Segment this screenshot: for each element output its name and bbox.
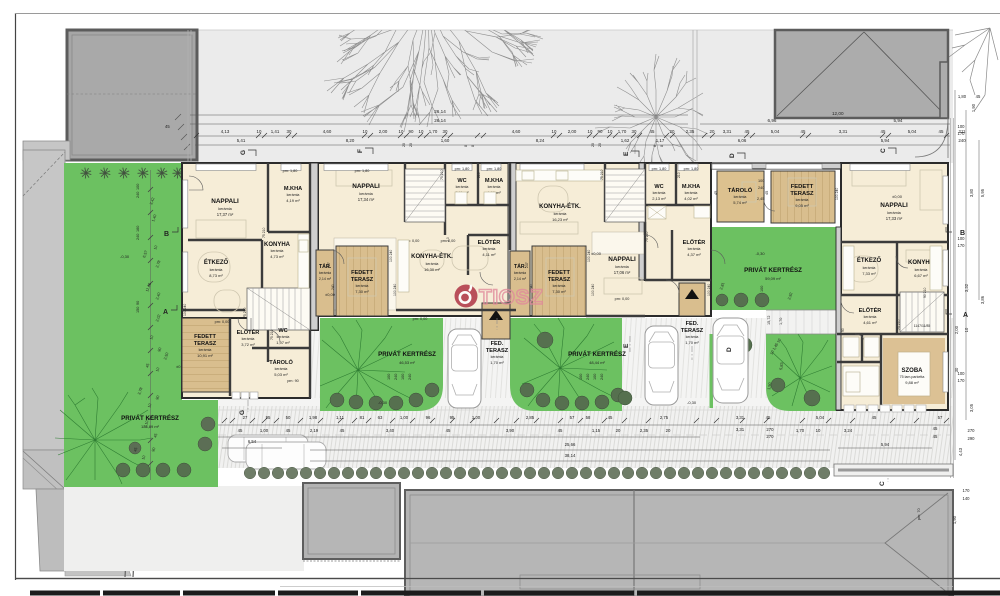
svg-text:170: 170: [958, 378, 966, 383]
svg-text:NAPPALI: NAPPALI: [211, 198, 239, 205]
svg-text:TÁROLÓ: TÁROLÓ: [269, 358, 293, 366]
svg-text:pm: 1,80: pm: 1,80: [283, 169, 298, 173]
svg-text:ÉTKEZŐ: ÉTKEZŐ: [204, 258, 229, 266]
svg-text:-0,30: -0,30: [755, 251, 765, 256]
svg-text:kerámia: kerámia: [491, 355, 504, 359]
svg-text:1,00: 1,00: [400, 415, 409, 420]
svg-text:pm: 0,00: pm: 0,00: [615, 297, 630, 301]
svg-text:NAPPALI: NAPPALI: [880, 202, 908, 209]
svg-text:kerámia: kerámia: [554, 212, 567, 216]
svg-text:45: 45: [340, 428, 345, 433]
svg-text:±0,00: ±0,00: [325, 292, 336, 297]
svg-text:1,60: 1,60: [441, 138, 450, 143]
svg-text:KONYHA-ÉTK.: KONYHA-ÉTK.: [539, 202, 581, 210]
svg-text:75 lam.parketta: 75 lam.parketta: [900, 375, 925, 379]
svg-text:kerámia: kerámia: [319, 271, 331, 275]
svg-text:3,31: 3,31: [736, 427, 745, 432]
svg-text:PRIVÁT KERTRÉSZ: PRIVÁT KERTRÉSZ: [121, 414, 179, 422]
svg-text:kerámia: kerámia: [686, 335, 699, 339]
svg-text:81: 81: [360, 415, 365, 420]
svg-text:20: 20: [598, 143, 602, 147]
svg-text:45: 45: [933, 426, 938, 431]
svg-text:TERASZ: TERASZ: [486, 348, 509, 354]
svg-text:10: 10: [552, 129, 557, 134]
svg-text:20: 20: [616, 428, 621, 433]
svg-text:1,00: 1,00: [260, 428, 269, 433]
svg-text:PRIVÁT KERTRÉSZ: PRIVÁT KERTRÉSZ: [744, 266, 802, 274]
svg-text:10: 10: [419, 129, 424, 134]
svg-text:100: 100: [760, 286, 764, 292]
svg-text:M.KHA: M.KHA: [284, 186, 302, 192]
svg-text:1,70: 1,70: [796, 428, 805, 433]
svg-text:20: 20: [402, 143, 406, 147]
svg-text:75 210: 75 210: [262, 228, 266, 238]
svg-text:M.KHA: M.KHA: [485, 178, 503, 184]
svg-text:A: A: [963, 312, 968, 319]
svg-text:4,73 m²: 4,73 m²: [270, 254, 284, 259]
svg-text:90 210: 90 210: [923, 288, 927, 298]
svg-text:TIOSZ: TIOSZ: [479, 286, 543, 309]
svg-text:kerámia: kerámia: [796, 198, 809, 202]
svg-text:63: 63: [378, 415, 383, 420]
svg-text:1,70: 1,70: [429, 129, 438, 134]
svg-text:240: 240: [331, 284, 335, 290]
svg-text:59,09 m²: 59,09 m²: [765, 276, 781, 281]
svg-text:1,70: 1,70: [618, 129, 627, 134]
svg-text:150: 150: [136, 307, 140, 313]
svg-text:8: 8: [471, 145, 475, 147]
svg-text:5,04: 5,04: [771, 129, 780, 134]
svg-text:TÁROLÓ: TÁROLÓ: [728, 186, 753, 194]
svg-text:FEDETT: FEDETT: [548, 270, 570, 276]
svg-text:kerámia: kerámia: [688, 247, 701, 251]
svg-text:PRIVÁT KERTRÉSZ: PRIVÁT KERTRÉSZ: [568, 350, 626, 358]
svg-text:45: 45: [558, 428, 563, 433]
svg-text:100 240: 100 240: [587, 250, 591, 262]
svg-text:57: 57: [938, 415, 943, 420]
svg-text:100 240: 100 240: [393, 284, 397, 296]
svg-text:5,94: 5,94: [881, 442, 890, 447]
svg-text:270: 270: [968, 428, 976, 433]
svg-text:3,31: 3,31: [839, 129, 848, 134]
svg-text:kerámia: kerámia: [275, 367, 288, 371]
svg-text:10: 10: [257, 129, 262, 134]
svg-text:FEDETT: FEDETT: [351, 270, 373, 276]
svg-text:240: 240: [586, 374, 590, 380]
svg-text:2,0: 2,0: [446, 237, 450, 242]
svg-text:10: 10: [588, 129, 593, 134]
svg-text:3,40: 3,40: [386, 428, 395, 433]
svg-text:pm: 90: pm: 90: [287, 379, 299, 383]
svg-text:270: 270: [766, 434, 774, 439]
svg-text:1,17: 1,17: [656, 138, 665, 143]
svg-text:kerámia: kerámia: [514, 271, 526, 275]
svg-text:kerámia: kerámia: [287, 193, 300, 197]
svg-text:10: 10: [608, 129, 613, 134]
svg-text:1,41: 1,41: [271, 129, 280, 134]
svg-text:PRIVÁT KERTRÉSZ: PRIVÁT KERTRÉSZ: [378, 350, 436, 358]
svg-text:20: 20: [710, 129, 715, 134]
svg-text:75 210: 75 210: [645, 232, 649, 242]
svg-text:46,53 m²: 46,53 m²: [399, 360, 415, 365]
svg-text:kerámia: kerámia: [863, 266, 876, 270]
svg-text:75 210: 75 210: [243, 308, 247, 318]
svg-text:KONYHA: KONYHA: [264, 242, 291, 248]
svg-text:B: B: [164, 231, 169, 238]
svg-text:10: 10: [816, 428, 821, 433]
svg-text:4,13: 4,13: [221, 129, 230, 134]
svg-text:4,61 m²: 4,61 m²: [863, 320, 877, 325]
svg-text:240: 240: [136, 234, 140, 240]
svg-text:10: 10: [964, 327, 969, 332]
svg-text:kerámia: kerámia: [685, 191, 698, 195]
svg-text:TERASZ: TERASZ: [194, 341, 217, 347]
svg-text:45: 45: [650, 129, 655, 134]
svg-text:M.KHA: M.KHA: [682, 184, 700, 190]
svg-text:-0,30: -0,30: [120, 254, 130, 259]
svg-text:10,91 m²: 10,91 m²: [197, 353, 213, 358]
svg-text:1,90: 1,90: [952, 515, 957, 524]
svg-text:3,90: 3,90: [506, 428, 515, 433]
svg-text:75 210: 75 210: [897, 320, 901, 330]
svg-text:±0: ±0: [176, 364, 181, 369]
svg-text:1,70 m²: 1,70 m²: [685, 340, 699, 345]
svg-text:kerámia: kerámia: [359, 192, 373, 196]
svg-text:45: 45: [765, 191, 769, 195]
svg-text:90: 90: [136, 301, 140, 305]
svg-text:kerámia: kerámia: [271, 249, 284, 253]
svg-text:9,88 m²: 9,88 m²: [905, 380, 919, 385]
svg-text:2,19: 2,19: [310, 428, 319, 433]
svg-text:C: C: [879, 481, 886, 486]
svg-text:1,97 m²: 1,97 m²: [276, 340, 290, 345]
svg-text:4,37 m²: 4,37 m²: [687, 252, 701, 257]
svg-text:TERASZ: TERASZ: [548, 277, 571, 283]
svg-text:4,11 m²: 4,11 m²: [482, 252, 496, 257]
svg-text:ÉTKEZŐ: ÉTKEZŐ: [857, 256, 882, 264]
svg-text:ELŐTÉR: ELŐTÉR: [478, 238, 501, 246]
svg-text:210: 210: [477, 172, 481, 178]
svg-text:pm: 1,80: pm: 1,80: [455, 167, 470, 171]
svg-text:123,89 m²: 123,89 m²: [141, 424, 160, 429]
svg-text:100 240: 100 240: [591, 284, 595, 296]
svg-text:kerámia: kerámia: [553, 284, 566, 288]
svg-text:1,15: 1,15: [592, 428, 601, 433]
svg-text:kerámia: kerámia: [887, 211, 901, 215]
svg-text:1,62: 1,62: [621, 138, 630, 143]
svg-text:WC: WC: [457, 178, 466, 184]
svg-text:95: 95: [450, 415, 455, 420]
svg-text:KONYHA-ÉTK.: KONYHA-ÉTK.: [411, 252, 453, 260]
svg-text:FED.: FED.: [491, 341, 504, 347]
svg-text:48,44 m²: 48,44 m²: [589, 360, 605, 365]
svg-text:240: 240: [758, 186, 764, 190]
svg-text:170: 170: [963, 488, 971, 493]
svg-text:8,20: 8,20: [346, 138, 355, 143]
svg-text:4,02 m²: 4,02 m²: [684, 196, 698, 201]
svg-text:50: 50: [286, 415, 291, 420]
svg-text:45: 45: [608, 415, 613, 420]
svg-text:D: D: [729, 153, 736, 158]
svg-text:30: 30: [287, 129, 292, 134]
svg-text:237: 237: [525, 262, 529, 268]
svg-text:±0,00: ±0,00: [892, 194, 903, 199]
svg-text:kerámia: kerámia: [864, 315, 877, 319]
svg-text:ELŐTÉR: ELŐTÉR: [859, 306, 882, 314]
svg-text:90: 90: [598, 129, 603, 134]
svg-text:16,30 m²: 16,30 m²: [424, 267, 440, 272]
svg-text:7,33 m²: 7,33 m²: [862, 271, 876, 276]
svg-text:kerámia: kerámia: [210, 268, 223, 272]
svg-text:45: 45: [165, 124, 170, 129]
svg-text:NAPPALI: NAPPALI: [352, 183, 380, 190]
svg-text:3,86: 3,86: [980, 295, 985, 304]
svg-text:TERASZ: TERASZ: [681, 328, 704, 334]
svg-text:3,24: 3,24: [844, 428, 853, 433]
svg-text:kerámia: kerámia: [483, 247, 496, 251]
svg-text:240: 240: [136, 192, 140, 198]
svg-text:240: 240: [958, 138, 966, 143]
svg-text:2,14 m²: 2,14 m²: [319, 277, 332, 281]
svg-text:B: B: [960, 230, 965, 237]
svg-text:45: 45: [766, 415, 771, 420]
svg-text:A: A: [163, 309, 168, 316]
svg-text:pm: 0,00: pm: 0,00: [215, 320, 230, 324]
svg-text:45: 45: [801, 129, 806, 134]
svg-text:2,00: 2,00: [379, 129, 388, 134]
svg-text:pm: 70: pm: 70: [917, 508, 921, 520]
svg-text:6,06: 6,06: [738, 138, 747, 143]
svg-text:45: 45: [286, 428, 291, 433]
svg-text:1,90: 1,90: [971, 103, 976, 112]
svg-text:1,80: 1,80: [958, 94, 967, 99]
svg-text:16,23 m²: 16,23 m²: [552, 217, 568, 222]
svg-text:3,32: 3,32: [964, 283, 969, 292]
svg-text:2,75: 2,75: [660, 415, 669, 420]
svg-text:17,33 m²: 17,33 m²: [886, 216, 903, 221]
svg-text:270: 270: [766, 427, 774, 432]
svg-text:1,98: 1,98: [309, 415, 318, 420]
svg-text:kerámia: kerámia: [218, 207, 232, 211]
svg-text:pm: 1,80: pm: 1,80: [684, 167, 699, 171]
svg-text:2,00: 2,00: [568, 129, 577, 134]
svg-text:100: 100: [758, 179, 764, 183]
svg-text:210: 210: [677, 172, 681, 178]
svg-text:140: 140: [963, 496, 971, 501]
svg-text:F: F: [357, 149, 364, 153]
svg-text:10: 10: [363, 129, 368, 134]
svg-text:4,43: 4,43: [958, 447, 963, 456]
svg-text:SZOBA: SZOBA: [902, 368, 924, 374]
svg-text:TERASZ: TERASZ: [790, 191, 814, 197]
svg-text:20: 20: [591, 143, 595, 147]
svg-text:160: 160: [136, 226, 140, 232]
svg-text:2,14 m²: 2,14 m²: [514, 277, 527, 281]
svg-text:75 210: 75 210: [600, 170, 604, 180]
svg-text:3,72 m²: 3,72 m²: [241, 342, 255, 347]
svg-text:9,05 m²: 9,05 m²: [795, 203, 809, 208]
svg-text:20: 20: [670, 129, 675, 134]
svg-text:-0,30: -0,30: [378, 400, 388, 405]
svg-text:2,45: 2,45: [757, 197, 764, 201]
svg-text:-0,30: -0,30: [687, 400, 697, 405]
svg-text:G: G: [240, 150, 247, 155]
svg-text:6,67 m²: 6,67 m²: [914, 273, 928, 278]
svg-text:170: 170: [958, 131, 966, 136]
svg-text:45: 45: [745, 129, 750, 134]
svg-text:45: 45: [872, 415, 877, 420]
svg-text:FEDETT: FEDETT: [194, 334, 216, 340]
svg-text:17,34 m²: 17,34 m²: [358, 197, 375, 202]
svg-text:20: 20: [409, 143, 413, 147]
svg-text:NAPPALI: NAPPALI: [608, 256, 636, 263]
svg-text:ELŐTÉR: ELŐTÉR: [237, 328, 260, 336]
svg-text:27: 27: [243, 415, 248, 420]
svg-text:1,00: 1,00: [472, 415, 481, 420]
svg-text:5,74 m²: 5,74 m²: [733, 200, 747, 205]
svg-text:2,13 m²: 2,13 m²: [652, 196, 666, 201]
svg-text:10: 10: [399, 129, 404, 134]
svg-text:8: 8: [653, 145, 657, 147]
svg-text:C: C: [880, 148, 887, 153]
svg-text:100: 100: [387, 374, 391, 380]
svg-text:100: 100: [136, 184, 140, 190]
svg-text:D: D: [726, 347, 733, 352]
svg-text:45: 45: [446, 428, 451, 433]
svg-text:100: 100: [401, 374, 405, 380]
svg-text:6,54: 6,54: [248, 439, 257, 444]
svg-text:170: 170: [958, 243, 966, 248]
svg-text:4,19 m²: 4,19 m²: [286, 198, 300, 203]
svg-text:75 210: 75 210: [440, 170, 444, 180]
svg-text:1,70 m²: 1,70 m²: [490, 360, 504, 365]
svg-text:96: 96: [426, 415, 431, 420]
svg-text:7,30 m²: 7,30 m²: [552, 289, 566, 294]
svg-text:30: 30: [443, 129, 448, 134]
svg-text:3,31: 3,31: [723, 129, 732, 134]
svg-text:8,73 m²: 8,73 m²: [209, 273, 223, 278]
svg-text:90: 90: [409, 129, 414, 134]
svg-text:90: 90: [841, 328, 845, 332]
svg-text:pm: 1,80: pm: 1,80: [652, 167, 667, 171]
svg-text:5,94: 5,94: [894, 118, 903, 123]
svg-text:5,95: 5,95: [980, 188, 985, 197]
svg-text:38,14: 38,14: [565, 453, 576, 458]
svg-text:100 240: 100 240: [389, 250, 393, 262]
svg-text:45: 45: [976, 94, 981, 99]
svg-text:3,05: 3,05: [969, 403, 974, 412]
svg-text:17,06 m²: 17,06 m²: [614, 270, 631, 275]
svg-text:26,14: 26,14: [434, 109, 446, 114]
svg-text:kerámia: kerámia: [426, 262, 439, 266]
svg-text:kerámia: kerámia: [456, 185, 469, 189]
svg-text:E: E: [623, 343, 630, 348]
svg-text:1,11: 1,11: [336, 415, 345, 420]
svg-text:6,96: 6,96: [768, 118, 777, 123]
svg-text:45: 45: [939, 129, 944, 134]
svg-text:kerámia: kerámia: [199, 348, 212, 352]
svg-text:100: 100: [579, 374, 583, 380]
svg-text:45: 45: [238, 428, 243, 433]
svg-text:17,37 m²: 17,37 m²: [217, 212, 234, 217]
svg-text:5,03 m²: 5,03 m²: [274, 372, 288, 377]
svg-text:pm: 1,80: pm: 1,80: [487, 167, 502, 171]
svg-text:5,94: 5,94: [881, 138, 890, 143]
svg-text:240: 240: [600, 374, 604, 380]
svg-text:100: 100: [593, 374, 597, 380]
svg-text:8: 8: [464, 145, 468, 147]
svg-text:58: 58: [586, 415, 591, 420]
svg-text:kerámia: kerámia: [734, 195, 747, 199]
svg-text:kerámia: kerámia: [356, 284, 369, 288]
svg-text:kerámia: kerámia: [615, 265, 629, 269]
svg-text:kerámia: kerámia: [653, 191, 666, 195]
svg-text:pm: 1,80: pm: 1,80: [355, 169, 370, 173]
svg-text:45: 45: [933, 434, 938, 439]
svg-text:12,00: 12,00: [832, 111, 844, 116]
svg-text:5,04: 5,04: [816, 415, 825, 420]
svg-text:100 240: 100 240: [707, 284, 711, 296]
svg-text:100 240: 100 240: [183, 304, 187, 316]
svg-text:8,24: 8,24: [536, 138, 545, 143]
svg-text:3,80: 3,80: [969, 188, 974, 197]
svg-text:WC: WC: [654, 184, 663, 190]
svg-text:4,60: 4,60: [323, 129, 332, 134]
svg-text:FEDETT: FEDETT: [791, 184, 814, 190]
svg-text:ELŐTÉR: ELŐTÉR: [683, 238, 706, 246]
svg-text:4,60: 4,60: [512, 129, 521, 134]
svg-text:15,72: 15,72: [767, 315, 771, 325]
svg-text:100: 100: [958, 124, 966, 129]
svg-text:237: 237: [327, 262, 331, 268]
svg-text:TERASZ: TERASZ: [351, 277, 374, 283]
svg-text:2,35: 2,35: [640, 428, 649, 433]
svg-text:100 240: 100 240: [835, 188, 839, 200]
svg-text:2,85: 2,85: [526, 415, 535, 420]
svg-text:±0,00: ±0,00: [591, 251, 602, 256]
svg-text:kerámia: kerámia: [915, 268, 928, 272]
svg-text:20: 20: [666, 428, 671, 433]
svg-text:45: 45: [881, 129, 886, 134]
svg-text:5,04: 5,04: [908, 129, 917, 134]
svg-text:3,31: 3,31: [736, 415, 745, 420]
svg-text:E: E: [623, 151, 630, 156]
svg-text:kerámia: kerámia: [488, 185, 501, 189]
svg-text:240: 240: [394, 374, 398, 380]
svg-text:240: 240: [408, 374, 412, 380]
svg-text:30: 30: [632, 129, 637, 134]
svg-text:290: 290: [968, 436, 976, 441]
svg-text:45: 45: [714, 191, 718, 195]
svg-text:1,70: 1,70: [779, 318, 783, 325]
svg-text:FED.: FED.: [686, 321, 699, 327]
svg-text:1147/11/85: 1147/11/85: [914, 324, 931, 328]
svg-text:kerámia: kerámia: [242, 337, 255, 341]
svg-text:8: 8: [660, 145, 664, 147]
svg-text:26,14: 26,14: [434, 118, 446, 123]
svg-text:95: 95: [266, 415, 271, 420]
svg-text:WC: WC: [278, 328, 287, 334]
svg-text:57: 57: [570, 415, 575, 420]
svg-text:pm: 0,00: pm: 0,00: [413, 317, 428, 321]
svg-text:5,41: 5,41: [237, 138, 246, 143]
svg-text:25,66: 25,66: [565, 442, 576, 447]
svg-text:2,35: 2,35: [686, 129, 695, 134]
svg-text:7,30 m²: 7,30 m²: [355, 289, 369, 294]
